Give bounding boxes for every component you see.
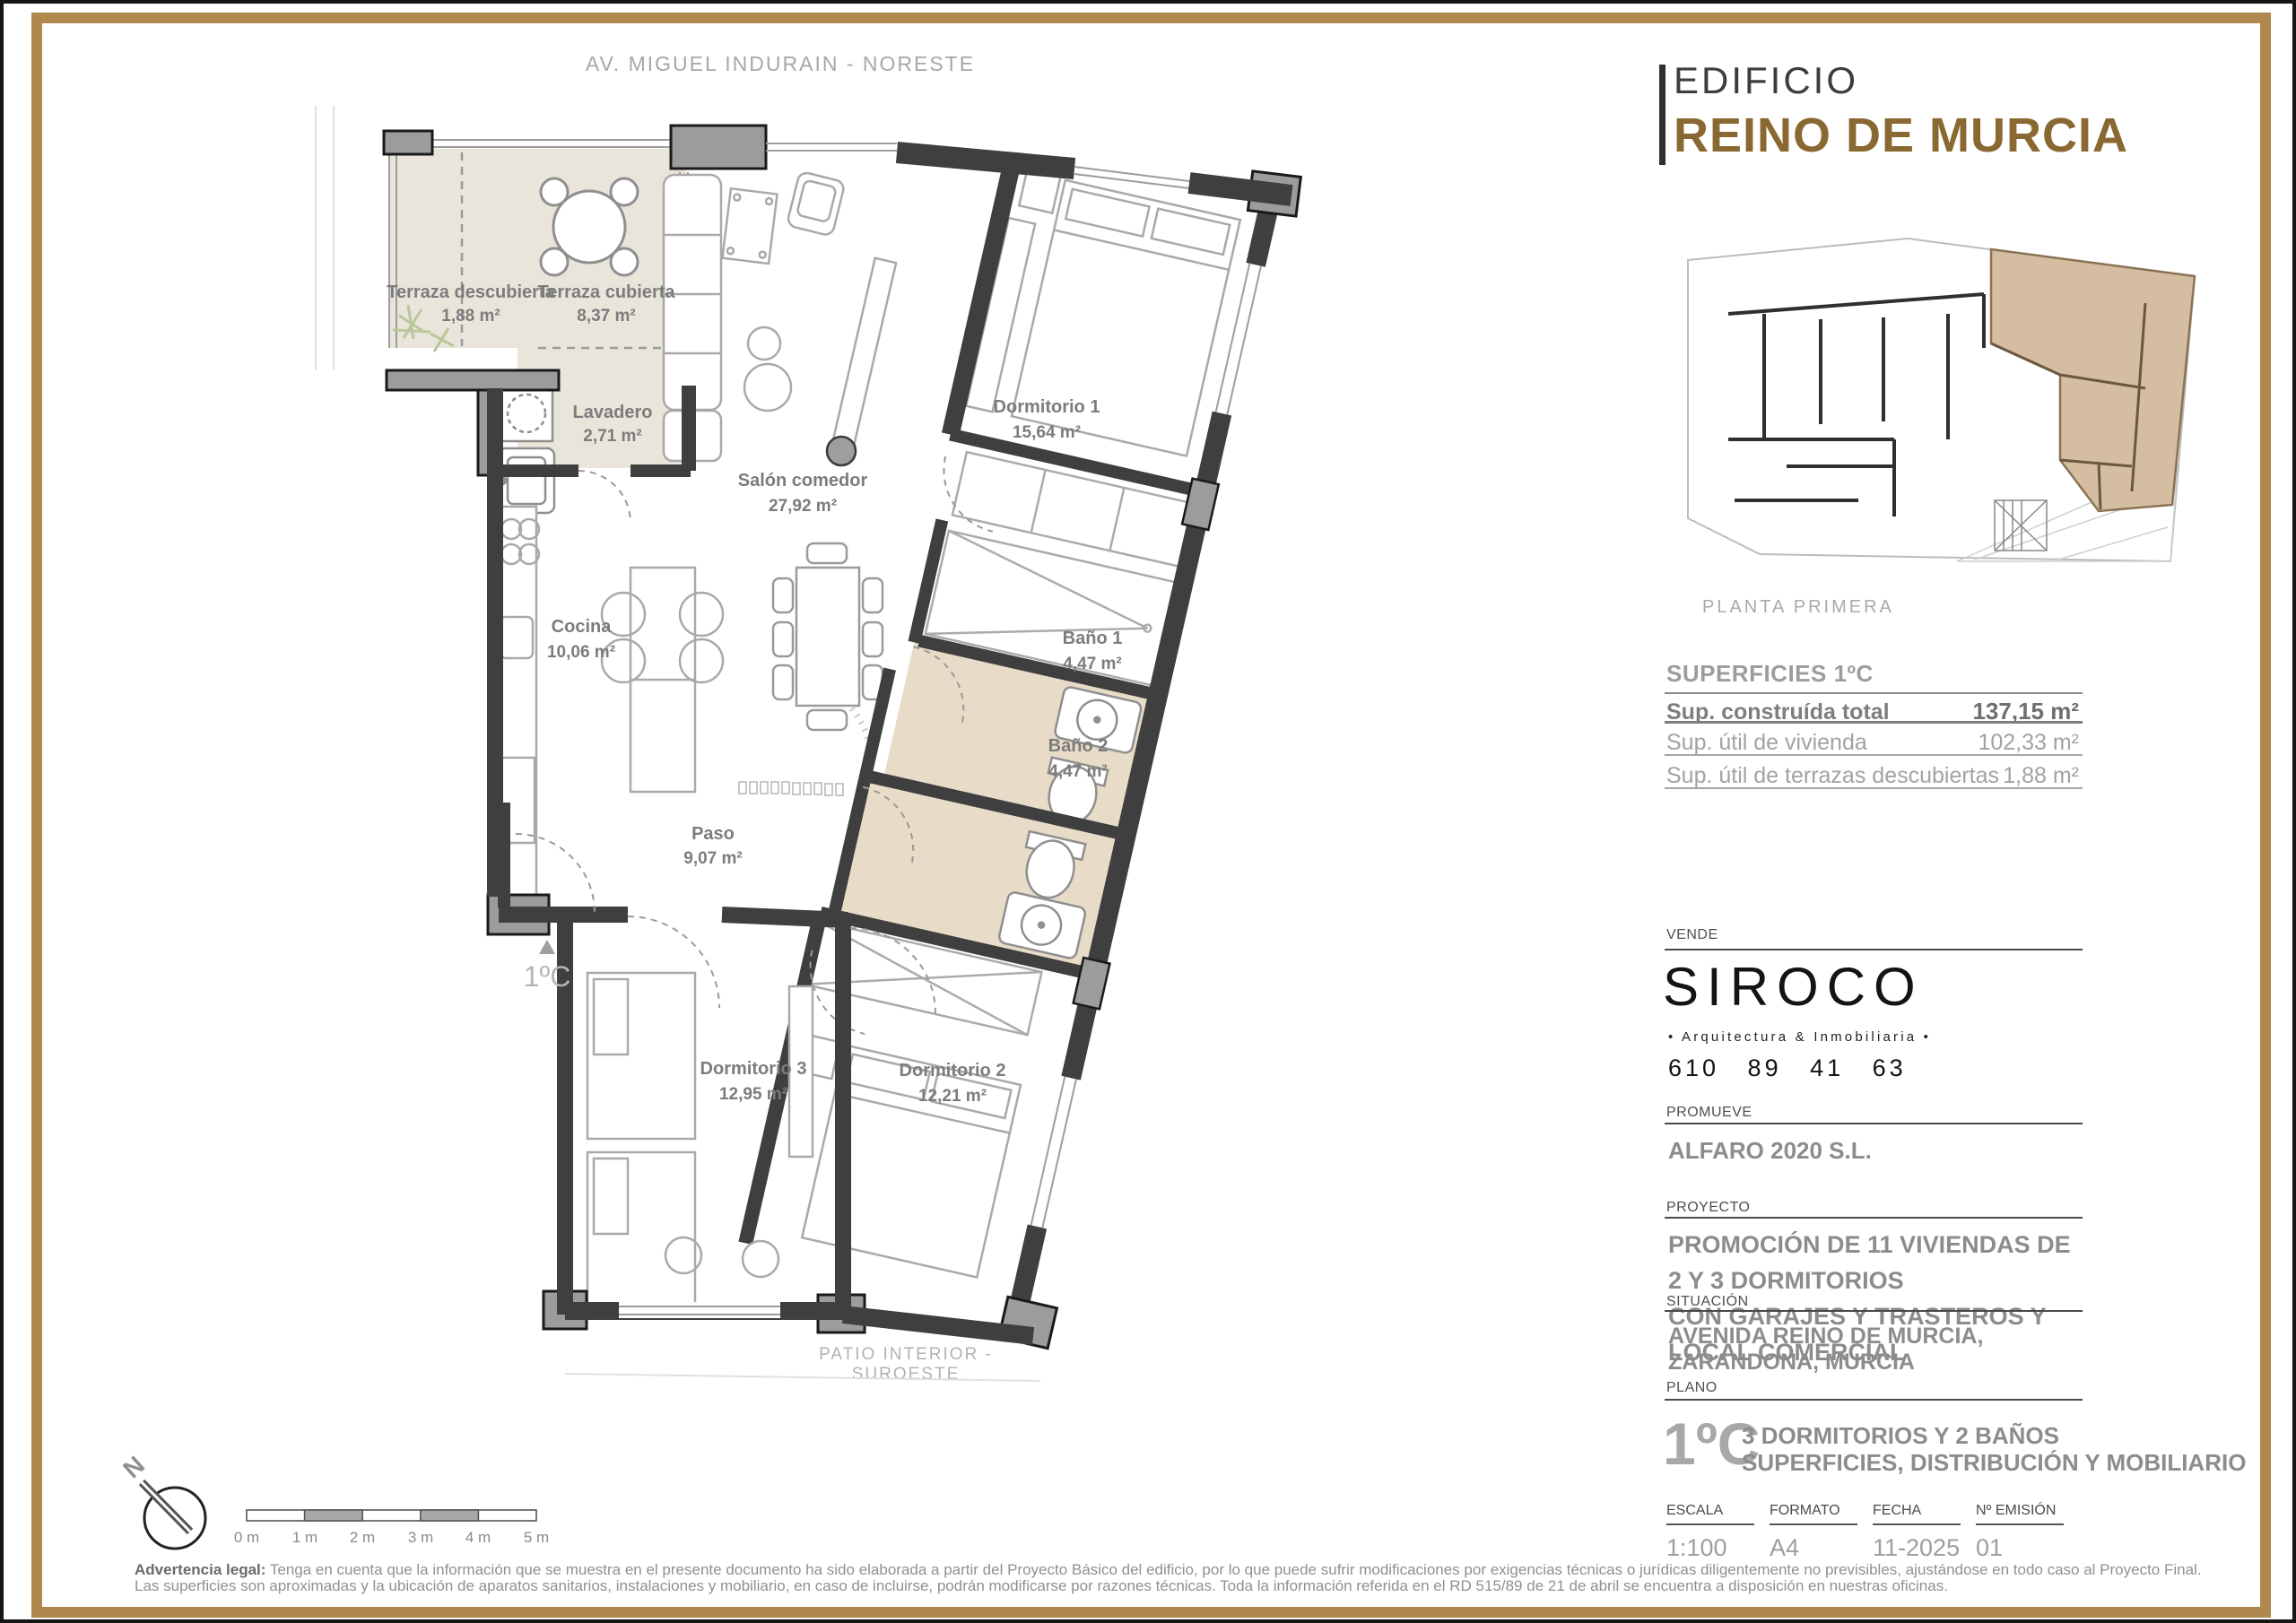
room-label-lavadero: Lavadero — [573, 403, 653, 422]
svg-text:1 m: 1 m — [292, 1529, 317, 1546]
room-label-terraza-descubierta: Terraza descubierta — [387, 282, 555, 302]
kitchen-units — [497, 507, 723, 897]
laundry-fixtures — [499, 386, 554, 513]
room-label-bano2: Baño 2 — [1048, 736, 1109, 756]
svg-text:4 m: 4 m — [465, 1529, 491, 1546]
svg-text:27,92 m²: 27,92 m² — [769, 497, 837, 516]
room-label-dormitorio1: Dormitorio 1 — [994, 397, 1100, 417]
vende-label: VENDE — [1666, 927, 1718, 943]
legal-prefix: Advertencia legal: — [135, 1561, 265, 1578]
svg-text:3 m: 3 m — [408, 1529, 433, 1546]
svg-text:1,88 m²: 1,88 m² — [441, 307, 500, 325]
svg-text:1ºC: 1ºC — [524, 960, 571, 993]
building-name: REINO DE MURCIA — [1674, 108, 2128, 163]
keyplan-caption: PLANTA PRIMERA — [1702, 597, 1894, 618]
svg-text:N: N — [117, 1451, 150, 1484]
svg-text:2,71 m²: 2,71 m² — [583, 427, 641, 446]
north-arrow-icon: N — [117, 1451, 205, 1549]
siroco-tagline: • Arquitectura & Inmobiliaria • — [1668, 1029, 1931, 1045]
legal-disclaimer: Advertencia legal: Tenga en cuenta que l… — [135, 1562, 2206, 1594]
brand-divider — [1659, 65, 1665, 165]
svg-text:5 m: 5 m — [524, 1529, 549, 1546]
room-label-terraza-cubierta: Terraza cubierta — [537, 282, 675, 302]
threshold-tiles — [739, 708, 871, 798]
scale-bar: 0 m 1 m 2 m 3 m 4 m 5 m — [234, 1510, 549, 1546]
svg-text:0 m: 0 m — [234, 1529, 259, 1546]
room-label-paso: Paso — [691, 824, 735, 844]
superficies-row: Sup. útil de terrazas descubiertas 1,88 … — [1666, 763, 2079, 789]
room-label-cocina: Cocina — [552, 617, 613, 637]
siroco-logo: SIROCO — [1663, 956, 1924, 1018]
svg-text:12,95 m²: 12,95 m² — [719, 1085, 787, 1104]
svg-text:4,47 m²: 4,47 m² — [1063, 655, 1121, 673]
svg-text:10,06 m²: 10,06 m² — [547, 643, 615, 662]
svg-text:15,64 m²: 15,64 m² — [1013, 423, 1081, 442]
room-label-salon: Salón comedor — [738, 471, 868, 490]
situacion-value: AVENIDA REINO DE MURCIA, ZARANDONA, MURC… — [1668, 1324, 2090, 1376]
floor-plan: 1ºC Terraza descubierta 1,88 m² Terraza … — [0, 0, 1659, 1399]
plano-description: 3 DORMITORIOS Y 2 BAÑOS SUPERFICIES, DIS… — [1742, 1422, 2100, 1476]
situacion-label: SITUACIÓN — [1666, 1294, 1749, 1310]
meta-emision: Nº EMISIÓN 01 — [1976, 1503, 2076, 1562]
plano-label: PLANO — [1666, 1380, 1718, 1396]
room-label-dormitorio3: Dormitorio 3 — [700, 1059, 807, 1079]
bedroom3-furniture — [587, 973, 813, 1318]
building-prefix: EDIFICIO — [1674, 59, 1858, 102]
info-panel: EDIFICIO REINO DE MURCIA PLANTA PRIMERA … — [1659, 0, 2090, 1623]
svg-text:4,47 m²: 4,47 m² — [1048, 762, 1107, 781]
living-furniture — [664, 171, 896, 465]
promueve-label: PROMUEVE — [1666, 1105, 1752, 1121]
siroco-phone: 610 89 41 63 — [1668, 1055, 1907, 1082]
promueve-value: ALFARO 2020 S.L. — [1668, 1137, 1872, 1165]
terrace-table — [541, 178, 638, 275]
superficies-title: SUPERFICIES 1ºC — [1666, 660, 1874, 688]
keyplan-thumbnail — [1679, 231, 2206, 586]
room-label-bano1: Baño 1 — [1063, 629, 1123, 648]
meta-escala: ESCALA 1:100 — [1666, 1503, 1767, 1562]
superficies-row: Sup. útil de vivienda 102,33 m² — [1666, 730, 2079, 756]
room-label-dormitorio2: Dormitorio 2 — [900, 1061, 1006, 1081]
meta-fecha: FECHA 11-2025 — [1873, 1503, 1973, 1562]
proyecto-label: PROYECTO — [1666, 1200, 1751, 1216]
dining-table — [773, 543, 883, 730]
svg-text:2 m: 2 m — [350, 1529, 375, 1546]
svg-text:12,21 m²: 12,21 m² — [918, 1087, 987, 1106]
svg-text:9,07 m²: 9,07 m² — [683, 849, 742, 868]
svg-text:8,37 m²: 8,37 m² — [577, 307, 635, 325]
meta-formato: FORMATO A4 — [1770, 1503, 1870, 1562]
